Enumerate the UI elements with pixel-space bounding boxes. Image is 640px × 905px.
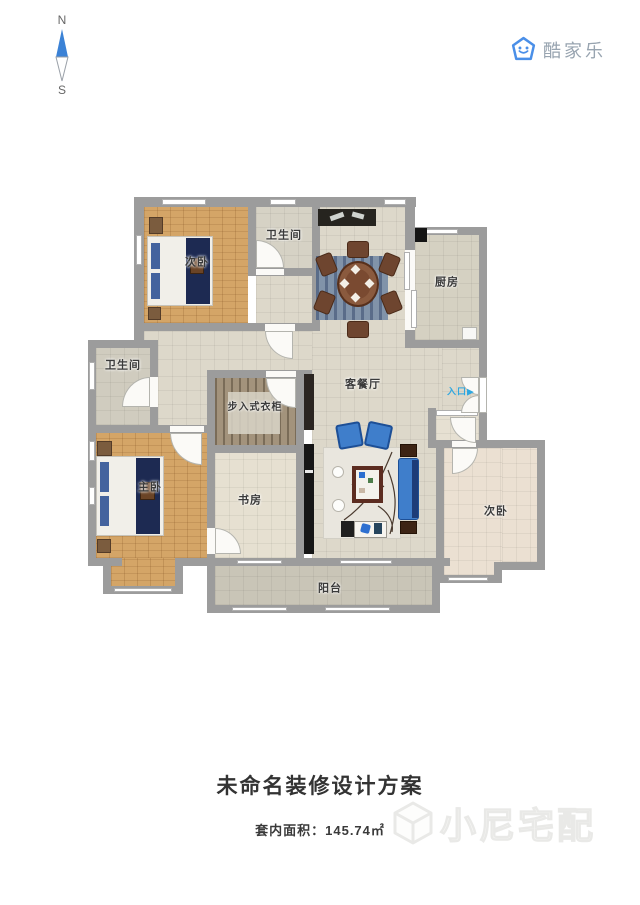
table-decor (359, 472, 365, 478)
wall-segment (296, 370, 304, 566)
area-label: 套内面积： (255, 823, 325, 838)
wall-segment (428, 408, 436, 448)
side-stool (332, 466, 344, 478)
wall-segment (88, 340, 158, 348)
sliding-panel (411, 290, 417, 328)
window (325, 607, 390, 611)
dining-chair (347, 321, 369, 338)
dining-chair (347, 241, 369, 258)
window (89, 362, 95, 390)
wall-segment (502, 562, 545, 570)
window (232, 607, 287, 611)
tv-screen (305, 470, 313, 473)
table-decor (359, 488, 365, 493)
floor-corridor (158, 370, 207, 433)
door-gap (150, 377, 158, 407)
window (89, 441, 95, 461)
compass-north-label: N (46, 13, 78, 27)
room-label-closet: 步入式衣柜 (228, 403, 283, 413)
wardrobe (97, 441, 112, 456)
watermark: 小尼宅配 (390, 797, 596, 849)
room-label-bedroom-right: 次卧 (484, 507, 508, 518)
pillow (151, 243, 160, 269)
kitchen-column (415, 228, 427, 242)
window (237, 560, 282, 564)
window (114, 588, 172, 592)
door-gap (256, 269, 284, 275)
wardrobe (149, 217, 163, 234)
brand-logo: 酷家乐 (510, 36, 606, 63)
nightstand (148, 307, 161, 320)
side-table (400, 521, 417, 534)
pillow (100, 496, 109, 526)
window (384, 199, 406, 205)
wall-segment (207, 445, 304, 453)
closet-rug (228, 392, 280, 434)
entrance-text: 入口 (447, 387, 467, 397)
window (270, 199, 296, 205)
window (89, 487, 95, 505)
compass-south-label: S (46, 83, 78, 97)
window (424, 229, 458, 234)
wall-segment (175, 558, 215, 566)
entry-door-opening (479, 377, 487, 413)
armchair (335, 421, 364, 450)
bench (354, 521, 387, 538)
room-label-balcony: 阳台 (318, 584, 342, 595)
armchair (364, 421, 394, 451)
room-label-bedroom-top: 次卧 (185, 258, 209, 269)
entrance-arrow-icon: ▶ (467, 387, 475, 397)
wall-segment (479, 227, 487, 348)
side-stool (332, 499, 345, 512)
window (162, 199, 206, 205)
room-label-living: 客餐厅 (345, 380, 381, 391)
compass: N S (46, 13, 78, 98)
door-gap (207, 528, 215, 554)
wall-segment (405, 340, 487, 348)
sofa-back (412, 460, 418, 518)
kitchen-sink (462, 327, 477, 340)
room-label-master: 主卧 (138, 483, 162, 494)
floor-hall-upper (256, 276, 312, 327)
sliding-panel (404, 252, 410, 290)
room-label-study: 书房 (238, 496, 262, 507)
tv-shelf (304, 374, 314, 430)
watermark-text: 小尼宅配 (440, 797, 596, 849)
room-label-bath-left: 卫生间 (105, 361, 141, 372)
entrance-label: 入口▶ (447, 388, 475, 397)
wall-segment (248, 197, 256, 276)
table-decor (368, 478, 373, 483)
compass-arrow-icon (52, 27, 72, 83)
door-gap (266, 371, 296, 377)
door-gap (170, 426, 204, 432)
area-value: 145.74㎡ (325, 823, 385, 838)
plan-title: 未命名装修设计方案 (0, 770, 640, 800)
wall-segment (537, 440, 545, 570)
wall-segment (436, 440, 444, 583)
wall-segment (134, 197, 144, 343)
watermark-cube-icon (390, 800, 436, 846)
nightstand (97, 539, 111, 553)
pillow (100, 462, 109, 492)
brand-logo-text: 酷家乐 (543, 37, 606, 63)
window (136, 235, 142, 265)
kujiale-shield-icon (510, 36, 537, 63)
room-label-bath-top: 卫生间 (266, 231, 302, 242)
sideboard (318, 209, 376, 226)
coffee-table (352, 466, 383, 503)
floorplan-page: N S 酷家乐 (0, 0, 640, 905)
pillow (151, 273, 160, 299)
bench-decor (374, 523, 382, 534)
side-table (400, 444, 417, 457)
window (340, 560, 392, 564)
small-table (341, 521, 354, 537)
tv-cabinet (304, 444, 314, 554)
door-gap (265, 324, 295, 331)
room-label-kitchen: 厨房 (435, 278, 459, 289)
window (448, 577, 488, 581)
